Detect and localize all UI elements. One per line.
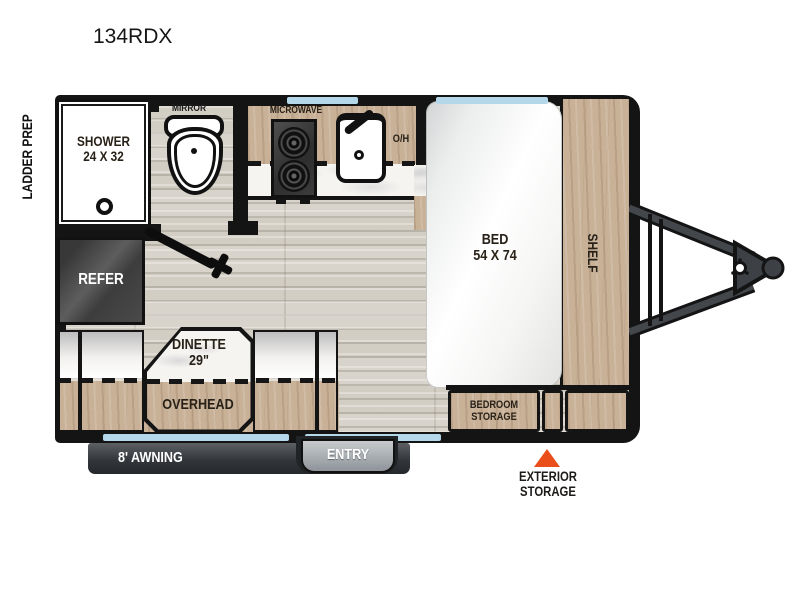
dinette-bench-end	[317, 330, 338, 432]
window	[103, 434, 289, 441]
storage-compartment	[542, 390, 563, 432]
window	[287, 97, 358, 104]
shower: SHOWER 24 X 32	[56, 99, 151, 227]
dinette-bench-end	[58, 330, 80, 432]
window	[436, 97, 548, 104]
entry-door: ENTRY	[296, 436, 398, 474]
exterior-storage-triangle-icon	[534, 449, 560, 467]
ladder-prep-label: LADDER PREP	[20, 107, 44, 207]
stove-foot	[300, 198, 310, 204]
microwave-label: MICROWAVE	[259, 106, 333, 117]
wall-stub	[148, 99, 159, 112]
refrigerator: REFER	[57, 237, 145, 325]
bed-label: BED 54 X 74	[449, 232, 541, 264]
shower-label: SHOWER 24 X 32	[66, 134, 141, 164]
bedroom-storage-label: BEDROOM STORAGE	[458, 400, 530, 424]
toilet-icon	[160, 112, 230, 198]
overhead-label: OVERHEAD	[154, 397, 241, 413]
floorplan-134rdx: 134RDX LADDER PREP SHOWER 24 X 32 MIRROR…	[0, 0, 800, 600]
dinette-bench-left	[80, 330, 144, 432]
shelf-label: SHELF	[586, 234, 600, 297]
stove-icon	[271, 119, 317, 198]
storage-compartment	[565, 390, 629, 432]
model-title: 134RDX	[93, 25, 172, 49]
shower-drain-icon	[96, 198, 113, 215]
exterior-storage-label: EXTERIOR STORAGE	[509, 470, 586, 499]
bedroom-storage: BEDROOM STORAGE	[448, 390, 540, 432]
bath-kitchen-wall-foot	[228, 221, 258, 235]
awning-label: 8' AWNING	[118, 450, 210, 466]
refer-label: REFER	[67, 271, 136, 288]
dinette-label: DINETTE 29"	[162, 337, 236, 369]
stove-foot	[276, 198, 286, 204]
bath-kitchen-wall	[233, 99, 248, 230]
hitch-icon	[629, 186, 794, 351]
overhead-cabinet-label: O/H	[387, 134, 416, 146]
dinette-bench-right	[253, 330, 317, 432]
entry-label: ENTRY	[310, 447, 386, 463]
